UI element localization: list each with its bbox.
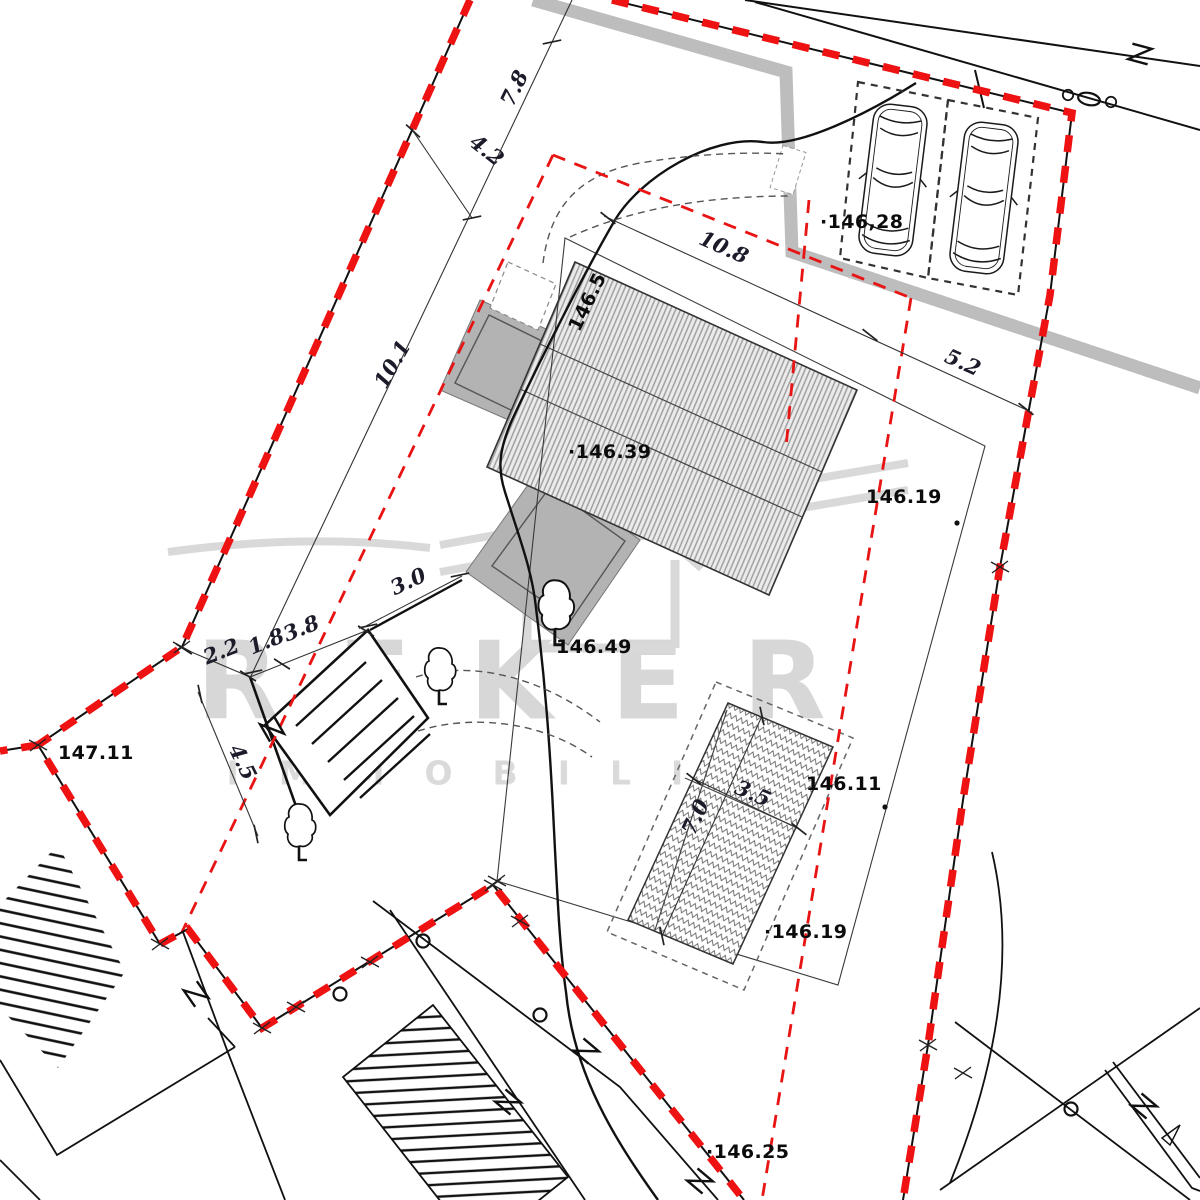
elevation-label: 146.49: [556, 636, 632, 658]
dimension-label: 7.0: [676, 795, 714, 839]
elevation-label: 146.19: [866, 486, 942, 508]
dimension-label: 4.2: [465, 129, 509, 171]
dimension-label: 4.5: [224, 740, 262, 784]
elevation-label: ·146.39: [568, 441, 651, 463]
dimension-label: 2.2: [199, 633, 242, 670]
elevation-label: ·146.25: [706, 1141, 789, 1163]
dimension-label: 5.2: [941, 343, 985, 381]
elevation-label: 146.5: [564, 269, 611, 334]
dimension-label: 10.8: [696, 225, 753, 269]
elevation-label: 146.11: [806, 773, 882, 795]
dimension-label: 10.1: [368, 336, 415, 393]
elevation-label: ·146,28: [820, 211, 903, 233]
dimension-label: 3.5: [731, 774, 774, 811]
elevation-label: 147.11: [58, 742, 134, 764]
site-plan-canvas: REKER IMMOBILIEN: [0, 0, 1200, 1200]
dimension-label: 3.0: [386, 562, 430, 600]
dimension-label: 1.8: [244, 623, 287, 660]
elevation-label: ·146.19: [764, 921, 847, 943]
label-layer: ·146,28146.5·146.39146.19146.49147.11146…: [0, 0, 1200, 1200]
dimension-label: 7.8: [495, 66, 533, 110]
dimension-label: 3.8: [279, 610, 322, 647]
